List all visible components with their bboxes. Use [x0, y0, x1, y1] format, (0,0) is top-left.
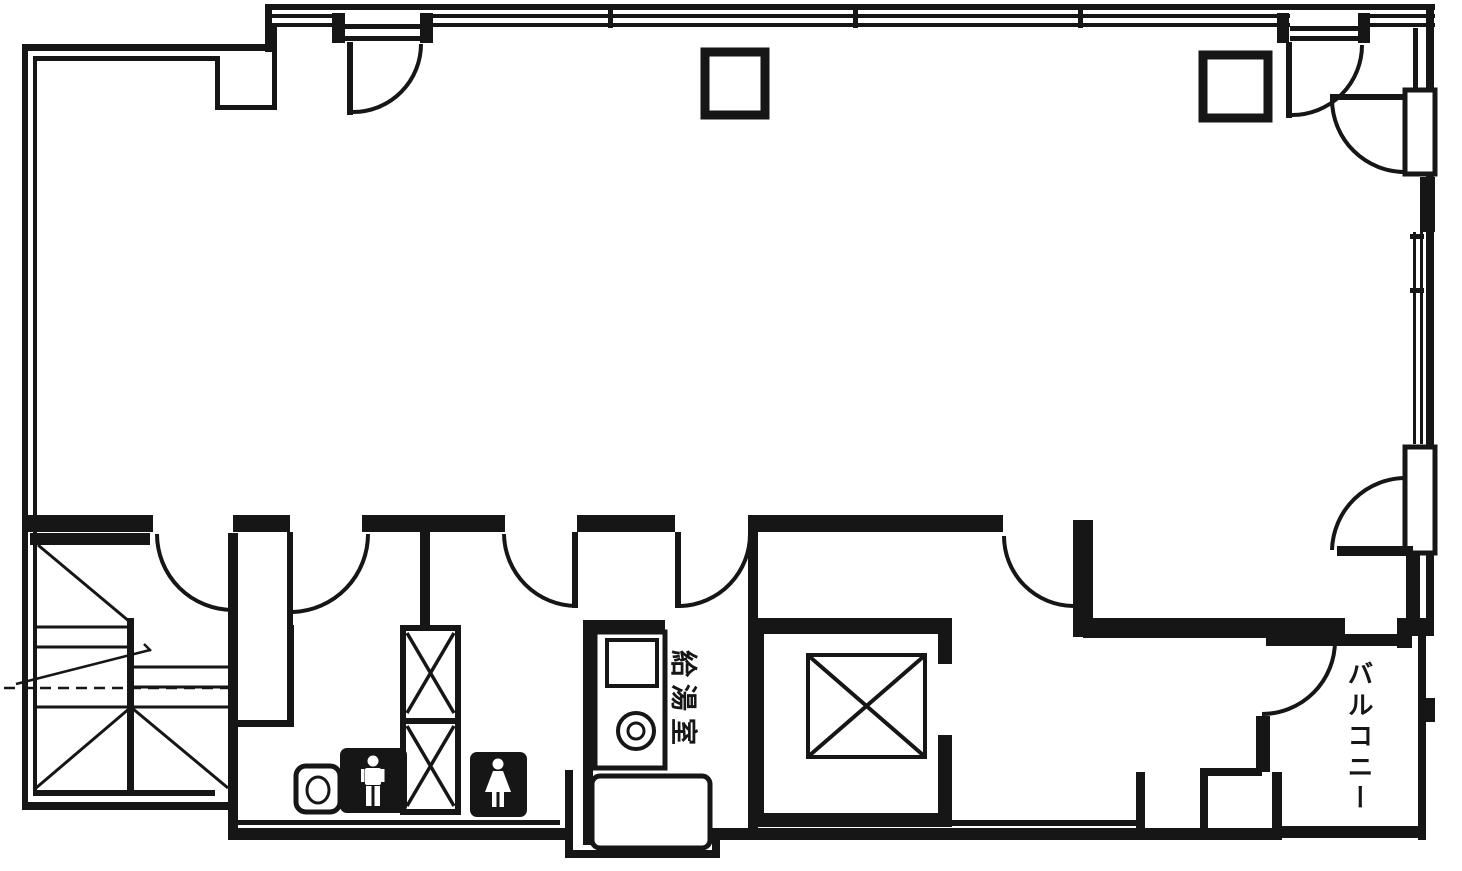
pipe-shaft [403, 628, 458, 812]
balcony-label: バルコニー [1340, 660, 1377, 830]
door-swing-arc [681, 534, 750, 606]
elevator-shaft [750, 618, 952, 827]
entry-door-top [332, 13, 433, 115]
door-swing-arc [353, 44, 421, 112]
door-swing-arc [504, 534, 576, 606]
door-top-right [1277, 13, 1370, 118]
door-swing-arc [1262, 641, 1335, 714]
door-right-lower [1332, 447, 1435, 636]
open-floor-area [705, 52, 1268, 118]
floor-plan-drawing [0, 0, 1462, 871]
corridor-wall [22, 515, 1345, 638]
stairwell [4, 533, 238, 830]
door-right-upper [1330, 90, 1435, 174]
door-swing-arc [1292, 45, 1362, 115]
door-swing-arc [157, 534, 233, 610]
elevator-x-symbol [808, 655, 925, 757]
floor-plan-page: 給湯室 バルコニー [0, 0, 1462, 871]
door-swing-arc [1004, 536, 1073, 606]
southeast-room [1136, 641, 1335, 832]
column-right [1203, 55, 1268, 118]
door-swing-arc [1332, 478, 1406, 550]
kitchenette [565, 532, 758, 858]
door-swing-arc [1332, 100, 1405, 172]
female-pictogram [470, 752, 527, 817]
door-swing-arc [293, 534, 368, 612]
toilet-bowl-icon [296, 766, 340, 812]
interior-doors [157, 532, 1073, 625]
male-pictogram [340, 748, 407, 813]
kitchenette-label: 給湯室 [664, 650, 700, 754]
column-left [705, 52, 765, 115]
